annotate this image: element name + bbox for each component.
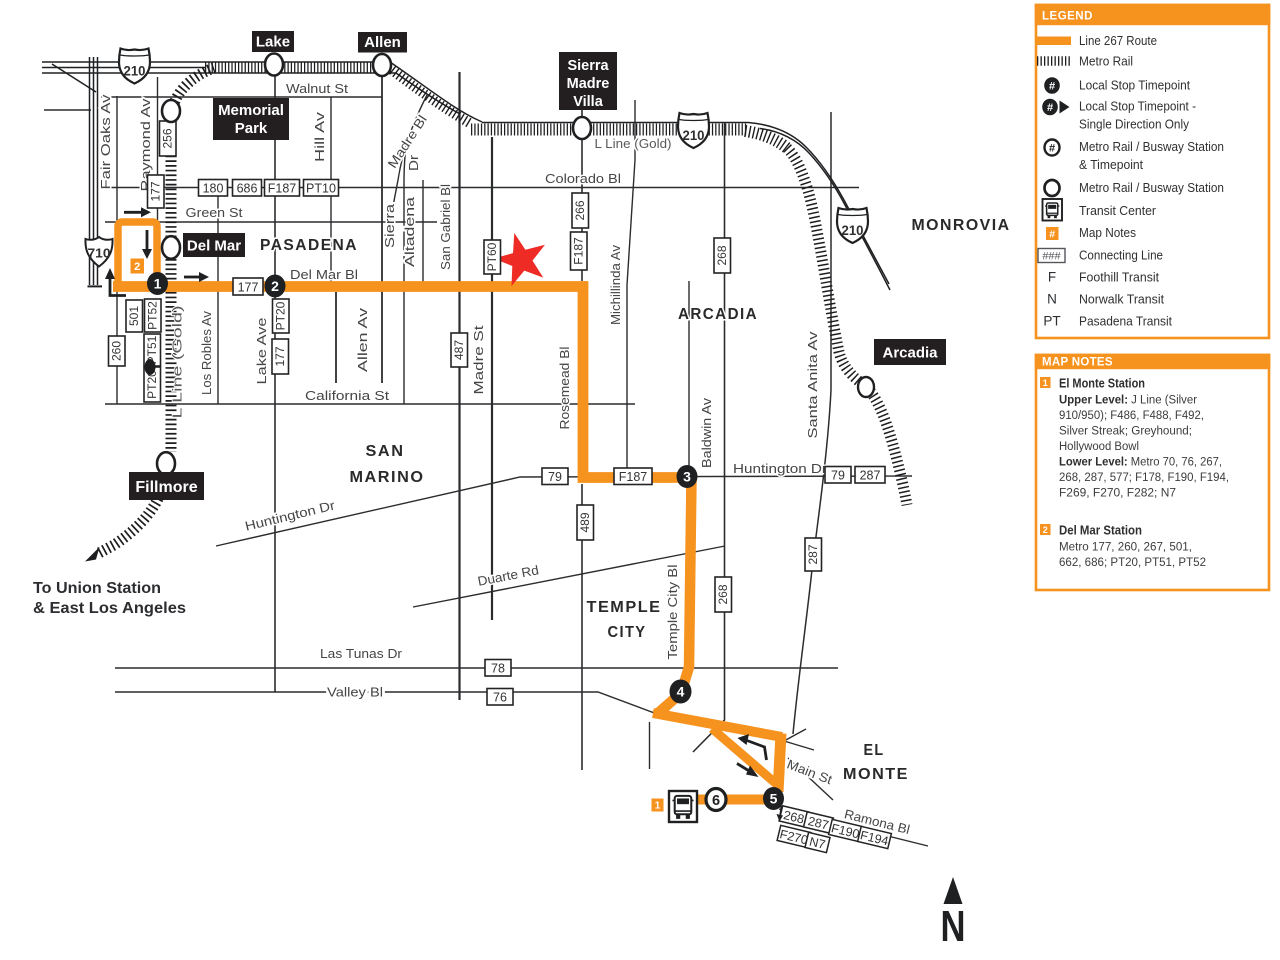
svg-text:TEMPLE: TEMPLE <box>587 599 662 616</box>
svg-text:SAN: SAN <box>366 443 405 460</box>
svg-text:Madre: Madre <box>567 76 610 92</box>
svg-text:Transit Center: Transit Center <box>1079 203 1157 218</box>
svg-text:210: 210 <box>124 64 146 79</box>
svg-text:N: N <box>1047 292 1057 307</box>
svg-text:L Line (Gold): L Line (Gold) <box>595 137 672 151</box>
svg-text:76: 76 <box>493 691 507 705</box>
svg-text:Los Robles Av: Los Robles Av <box>199 310 214 395</box>
svg-text:210: 210 <box>842 223 864 238</box>
svg-text:#: # <box>1047 102 1053 114</box>
svg-text:Lake Ave: Lake Ave <box>254 318 269 385</box>
svg-text:ARCADIA: ARCADIA <box>678 306 758 323</box>
svg-text:5: 5 <box>770 791 778 807</box>
svg-text:Santa Anita Av: Santa Anita Av <box>805 331 820 439</box>
svg-text:PT10: PT10 <box>306 182 336 196</box>
svg-text:Del Mar Bl: Del Mar Bl <box>290 267 358 282</box>
svg-text:Sierra: Sierra <box>567 58 609 74</box>
svg-text:MONTE: MONTE <box>843 766 909 783</box>
svg-text:& Timepoint: & Timepoint <box>1079 157 1143 172</box>
svg-text:3: 3 <box>683 469 691 485</box>
svg-text:266: 266 <box>573 200 587 220</box>
svg-text:Colorado Bl: Colorado Bl <box>545 171 621 186</box>
svg-text:California St: California St <box>305 388 389 403</box>
svg-text:###: ### <box>1042 250 1061 262</box>
svg-text:F187: F187 <box>268 182 297 196</box>
svg-text:Walnut St: Walnut St <box>286 81 348 96</box>
svg-text:L Line (Gold): L Line (Gold) <box>171 306 185 419</box>
svg-text:EL: EL <box>864 742 885 759</box>
svg-text:Allen Av: Allen Av <box>355 307 370 372</box>
svg-text:1: 1 <box>655 801 661 812</box>
svg-text:1: 1 <box>1043 378 1048 388</box>
svg-text:Park: Park <box>235 120 268 137</box>
svg-text:78: 78 <box>491 662 505 676</box>
svg-text:CITY: CITY <box>608 624 647 641</box>
svg-text:PASADENA: PASADENA <box>260 237 358 254</box>
svg-text:PT20: PT20 <box>274 301 288 330</box>
svg-text:Local Stop Timepoint -: Local Stop Timepoint - <box>1079 99 1196 114</box>
svg-text:260: 260 <box>110 341 124 361</box>
svg-text:256: 256 <box>161 128 175 148</box>
svg-text:Valley Bl: Valley Bl <box>327 685 383 700</box>
svg-text:Rosemead Bl: Rosemead Bl <box>557 346 572 429</box>
svg-text:Single Direction Only: Single Direction Only <box>1079 117 1190 132</box>
svg-text:79: 79 <box>548 470 562 484</box>
svg-text:Metro Rail / Busway Station: Metro Rail / Busway Station <box>1079 180 1224 195</box>
svg-text:710: 710 <box>88 246 111 261</box>
svg-text:287: 287 <box>860 469 881 483</box>
svg-text:Allen: Allen <box>364 34 401 51</box>
svg-text:180: 180 <box>203 182 224 196</box>
svg-text:177: 177 <box>273 346 287 366</box>
svg-text:Dr: Dr <box>406 154 421 171</box>
svg-text:To Union Station: To Union Station <box>33 580 161 597</box>
svg-text:Lower Level: Metro 70, 76, 267: Lower Level: Metro 70, 76, 267, <box>1059 455 1222 469</box>
svg-text:Michillinda Av: Michillinda Av <box>608 245 623 325</box>
svg-text:287: 287 <box>806 544 820 564</box>
svg-text:Fillmore: Fillmore <box>135 479 197 496</box>
svg-text:Silver Streak; Greyhound;: Silver Streak; Greyhound; <box>1059 424 1192 438</box>
svg-text:Hill Av: Hill Av <box>312 111 327 162</box>
svg-text:Lake: Lake <box>256 34 290 51</box>
svg-text:Upper Level: J Line (Silver: Upper Level: J Line (Silver <box>1059 393 1197 407</box>
svg-text:Madre St: Madre St <box>471 325 486 394</box>
svg-text:F: F <box>1048 270 1056 285</box>
svg-text:LEGEND: LEGEND <box>1042 11 1093 23</box>
svg-text:Line 267 Route: Line 267 Route <box>1079 33 1157 48</box>
svg-text:910/950); F486, F488, F492,: 910/950); F486, F488, F492, <box>1059 408 1204 422</box>
svg-text:Metro Rail: Metro Rail <box>1079 54 1133 69</box>
svg-text:501: 501 <box>127 306 141 326</box>
svg-text:268: 268 <box>715 245 729 265</box>
svg-text:El Monte Station: El Monte Station <box>1059 376 1145 391</box>
svg-text:#: # <box>1049 81 1055 93</box>
svg-text:PT52: PT52 <box>146 301 160 330</box>
svg-text:268, 287, 577; F178, F190, F19: 268, 287, 577; F178, F190, F194, <box>1059 470 1229 484</box>
svg-text:2: 2 <box>134 261 140 273</box>
svg-text:& East Los Angeles: & East Los Angeles <box>33 600 186 617</box>
svg-text:6: 6 <box>712 793 720 809</box>
svg-text:686: 686 <box>237 182 258 196</box>
svg-text:F187: F187 <box>572 237 586 265</box>
svg-text:N: N <box>941 902 966 951</box>
svg-text:MARINO: MARINO <box>350 469 425 486</box>
svg-text:Local Stop Timepoint: Local Stop Timepoint <box>1079 78 1190 93</box>
svg-text:Altadena: Altadena <box>402 196 417 267</box>
svg-text:Foothill Transit: Foothill Transit <box>1079 270 1159 285</box>
svg-text:MONROVIA: MONROVIA <box>912 217 1011 234</box>
svg-text:Metro 177, 260, 267, 501,: Metro 177, 260, 267, 501, <box>1059 540 1192 554</box>
svg-text:Map Notes: Map Notes <box>1079 225 1136 240</box>
svg-text:Memorial: Memorial <box>218 102 284 119</box>
svg-text:Baldwin Av: Baldwin Av <box>699 397 714 468</box>
svg-text:Connecting Line: Connecting Line <box>1079 248 1163 263</box>
svg-text:Sierra: Sierra <box>382 203 397 248</box>
svg-text:MAP NOTES: MAP NOTES <box>1042 357 1113 369</box>
svg-text:Hollywood Bowl: Hollywood Bowl <box>1059 439 1139 453</box>
svg-text:Metro Rail / Busway Station: Metro Rail / Busway Station <box>1079 139 1224 154</box>
svg-text:1: 1 <box>154 276 162 292</box>
svg-text:San Gabriel Bl: San Gabriel Bl <box>438 184 453 270</box>
svg-text:Green St: Green St <box>186 205 243 220</box>
svg-text:PT60: PT60 <box>485 242 499 271</box>
svg-text:Pasadena Transit: Pasadena Transit <box>1079 314 1172 329</box>
svg-text:4: 4 <box>677 684 685 700</box>
svg-text:487: 487 <box>452 340 466 360</box>
svg-text:PT: PT <box>1043 314 1060 329</box>
svg-text:210: 210 <box>683 128 705 143</box>
svg-text:Arcadia: Arcadia <box>882 345 938 362</box>
svg-text:Las Tunas Dr: Las Tunas Dr <box>320 646 403 661</box>
svg-text:2: 2 <box>1043 525 1048 535</box>
svg-text:Del Mar: Del Mar <box>187 238 241 255</box>
svg-text:177: 177 <box>149 181 163 201</box>
svg-text:Villa: Villa <box>573 94 603 110</box>
svg-text:662, 686; PT20, PT51, PT52: 662, 686; PT20, PT51, PT52 <box>1059 555 1206 569</box>
svg-text:F187: F187 <box>619 470 648 484</box>
svg-text:Fair Oaks Av: Fair Oaks Av <box>98 94 113 190</box>
svg-text:177: 177 <box>238 281 259 295</box>
svg-text:489: 489 <box>578 512 592 532</box>
svg-text:#: # <box>1049 228 1055 240</box>
svg-text:Huntington Dr: Huntington Dr <box>733 461 828 476</box>
svg-text:2: 2 <box>271 278 279 294</box>
svg-text:Temple City Bl: Temple City Bl <box>665 564 680 659</box>
svg-text:79: 79 <box>831 469 845 483</box>
svg-text:268: 268 <box>716 584 730 604</box>
svg-text:F269, F270, F282; N7: F269, F270, F282; N7 <box>1059 486 1176 500</box>
svg-text:Del Mar Station: Del Mar Station <box>1059 523 1142 538</box>
svg-text:#: # <box>1049 143 1055 155</box>
svg-text:Norwalk Transit: Norwalk Transit <box>1079 292 1164 307</box>
